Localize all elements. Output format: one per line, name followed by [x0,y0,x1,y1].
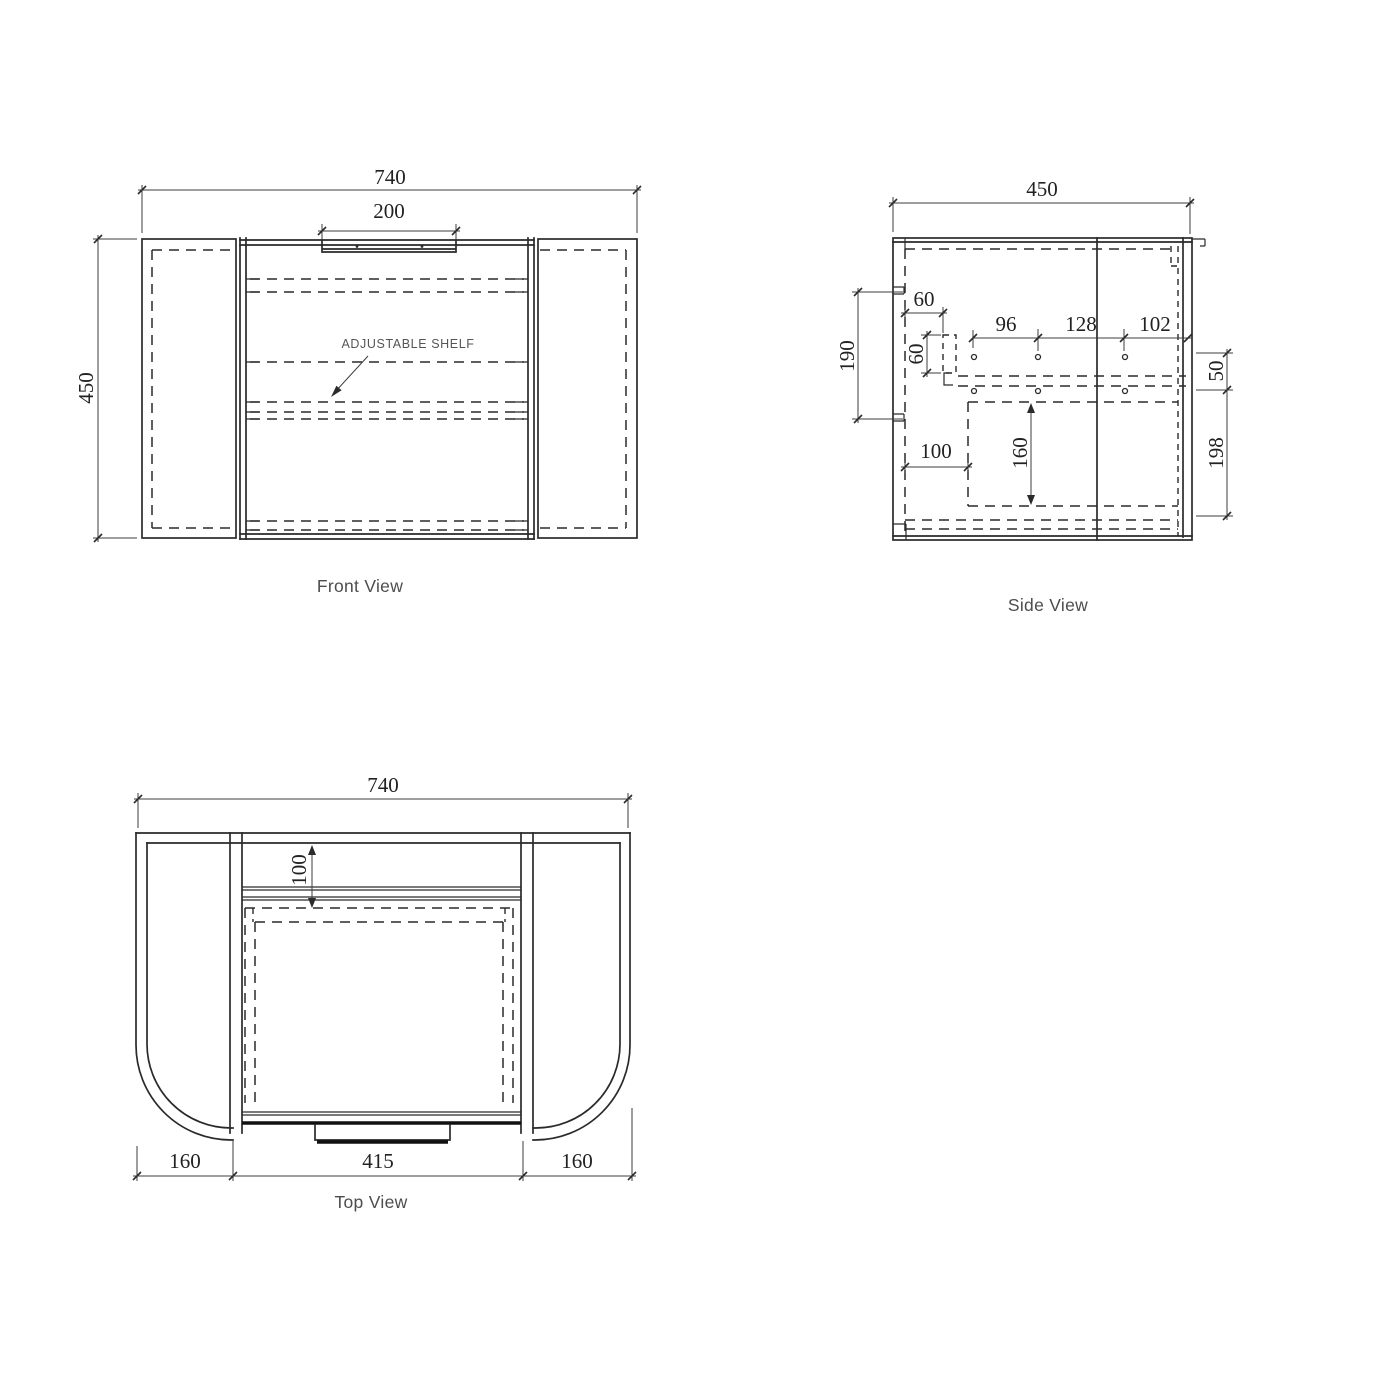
side-wall-tabs [893,287,906,540]
top-view-label: Top View [334,1192,407,1212]
side-rail-size-dim: 60 [904,344,928,365]
front-shelf-hidden-lines [246,279,528,530]
front-dim-handle-width: 200 [318,199,460,240]
adjustable-shelf-annotation: ADJUSTABLE SHELF [341,337,474,351]
front-right-door-panel [538,239,637,538]
side-dim-recess-depth: 160 [1008,403,1035,505]
side-rail-inset-dim: 60 [914,287,935,311]
front-dim-overall-height: 450 [74,235,137,542]
side-drawer-depth-160-dim: 160 [1008,437,1032,469]
top-door-width-dim: 415 [362,1149,394,1173]
top-left-wing-dim: 160 [169,1149,201,1173]
front-cabinet-carcass [240,238,534,539]
side-rail-drop-dim: 190 [835,340,859,372]
top-hidden-carcass [245,908,513,1103]
side-carcass-outline [893,238,1192,540]
side-dim-depth: 450 [889,177,1194,234]
front-overall-width-dim: 740 [374,165,406,189]
side-bottom-198-dim: 198 [1204,437,1228,469]
side-hidden-lines [905,249,1186,536]
side-dim-bottom-zone: 198 [1196,390,1233,520]
top-back-panel [242,887,521,900]
side-hole-offset-102-dim: 102 [1139,312,1171,336]
front-shelf-callout: ADJUSTABLE SHELF [331,337,475,397]
front-height-dim: 450 [74,372,98,404]
side-hole-pitch-128-dim: 128 [1065,312,1097,336]
side-drawer-offset-100-dim: 100 [920,439,952,463]
side-view-label: Side View [1008,595,1088,615]
top-outer-shell [136,833,630,1140]
front-view-label: Front View [317,576,403,596]
front-handle-width-dim: 200 [373,199,405,223]
side-drill-holes [972,355,1128,394]
top-right-wing-dim: 160 [561,1149,593,1173]
top-view-drawing: 740 100 160 415 160 Top View [133,773,636,1212]
side-dim-rail-inset: 60 [901,287,947,333]
top-overall-width-dim: 740 [367,773,399,797]
top-handle-outline [315,1125,450,1140]
side-hole-pitch-96-dim: 96 [996,312,1017,336]
top-dim-bottom-row: 160 415 160 [133,1108,636,1181]
front-left-door-panel [142,239,236,538]
side-mounting-block [943,335,956,385]
front-view-drawing: ADJUSTABLE SHELF 740 200 450 Front View [74,165,641,596]
side-depth-dim: 450 [1026,177,1058,201]
side-dim-hole-gap: 50 [1196,349,1233,394]
door-handle-profile [1192,239,1205,246]
side-view-drawing: 450 190 60 60 96 128 102 [835,177,1233,615]
side-dim-rail-size: 60 [904,331,941,377]
top-door-front [242,1112,521,1142]
side-dim-hole-row: 96 128 102 [969,312,1192,351]
top-dim-back-inset: 100 [287,845,316,908]
side-door-panel [1171,238,1205,537]
top-dim-overall-width: 740 [134,773,632,828]
side-hole-gap-50-dim: 50 [1204,361,1228,382]
technical-drawing-canvas: ADJUSTABLE SHELF 740 200 450 Front View [0,0,1400,1400]
top-back-inset-dim: 100 [287,854,311,886]
front-handle-recess [322,240,456,252]
leader-arrowhead-icon [331,386,342,397]
technical-drawing-page: ADJUSTABLE SHELF 740 200 450 Front View [0,0,1400,1400]
top-inner-box-walls [230,833,533,1133]
side-dim-recess-offset: 100 [901,439,972,473]
